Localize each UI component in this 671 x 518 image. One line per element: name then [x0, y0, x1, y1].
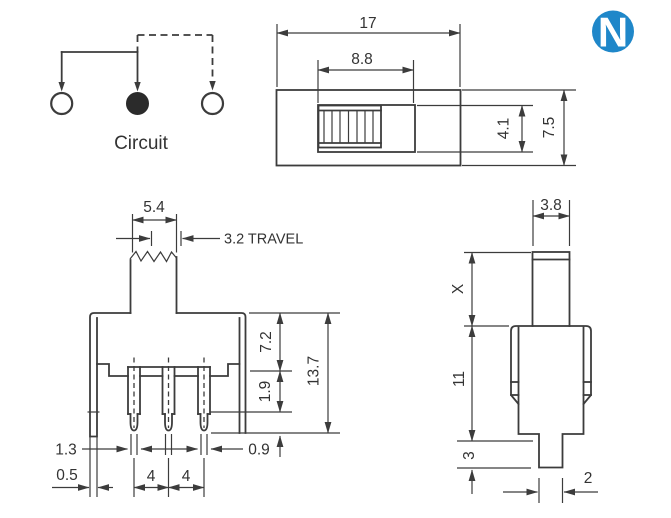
dim-slot-width: 8.8: [351, 51, 373, 68]
top-view-knob: [319, 106, 382, 148]
dim-pin-width: 1.3: [55, 442, 77, 459]
dim-total-height: 13.7: [306, 356, 323, 386]
dim-pin-thickness: 0.9: [248, 442, 270, 459]
brand-logo: N: [592, 9, 634, 56]
terminal-open-left: [51, 93, 72, 114]
technical-drawing: Circuit 17 8.8 4.1: [0, 0, 671, 518]
top-view-body-outline: [277, 90, 461, 166]
arrow-down: [209, 81, 215, 91]
dim-shoulder-height: 1.9: [257, 381, 274, 403]
dim-pin-length: 3: [461, 451, 478, 460]
travel-annotation: 3.2 TRAVEL: [116, 231, 303, 248]
dim-side-pin-width: 2: [584, 470, 593, 487]
dim-pitch-left: 4: [147, 468, 156, 485]
dim-foot-width: 0.5: [56, 467, 78, 484]
top-view: 17 8.8 4.1 7.5: [277, 15, 577, 166]
dim-side-body-height: 11: [451, 371, 468, 387]
circuit-label: Circuit: [114, 133, 169, 154]
terminal-open-right: [202, 93, 223, 114]
arrow-down: [59, 82, 65, 92]
terminal-common-filled: [127, 93, 149, 115]
dim-slot-height: 4.1: [496, 118, 513, 140]
circuit-diagram: Circuit: [51, 35, 223, 154]
dim-knob-width: 5.4: [143, 199, 165, 216]
dim-stem-height: X: [450, 283, 467, 294]
dim-stem-width: 3.8: [540, 197, 562, 214]
front-knob-stem: [130, 214, 177, 313]
side-view: 3.8 X 11 3 2: [450, 197, 598, 503]
front-body-outline: [88, 313, 246, 437]
arrow-down: [134, 82, 140, 92]
front-pin-1: [128, 358, 140, 498]
logo-letter: N: [598, 9, 628, 56]
travel-label: 3.2 TRAVEL: [224, 232, 303, 248]
dim-pitch-right: 4: [182, 468, 191, 485]
side-body-outline: [511, 326, 591, 468]
dim-overall-height: 7.5: [541, 117, 558, 139]
front-pin-3: [198, 358, 210, 498]
dim-body-height: 7.2: [258, 331, 275, 353]
dim-overall-width: 17: [359, 15, 376, 32]
front-pin-2: [163, 358, 175, 498]
side-knob-stem: [533, 252, 570, 326]
front-view: 5.4 3.2 TRAVEL 7.2 1.9 13.7 1.3 0.9 0.5: [52, 199, 340, 497]
